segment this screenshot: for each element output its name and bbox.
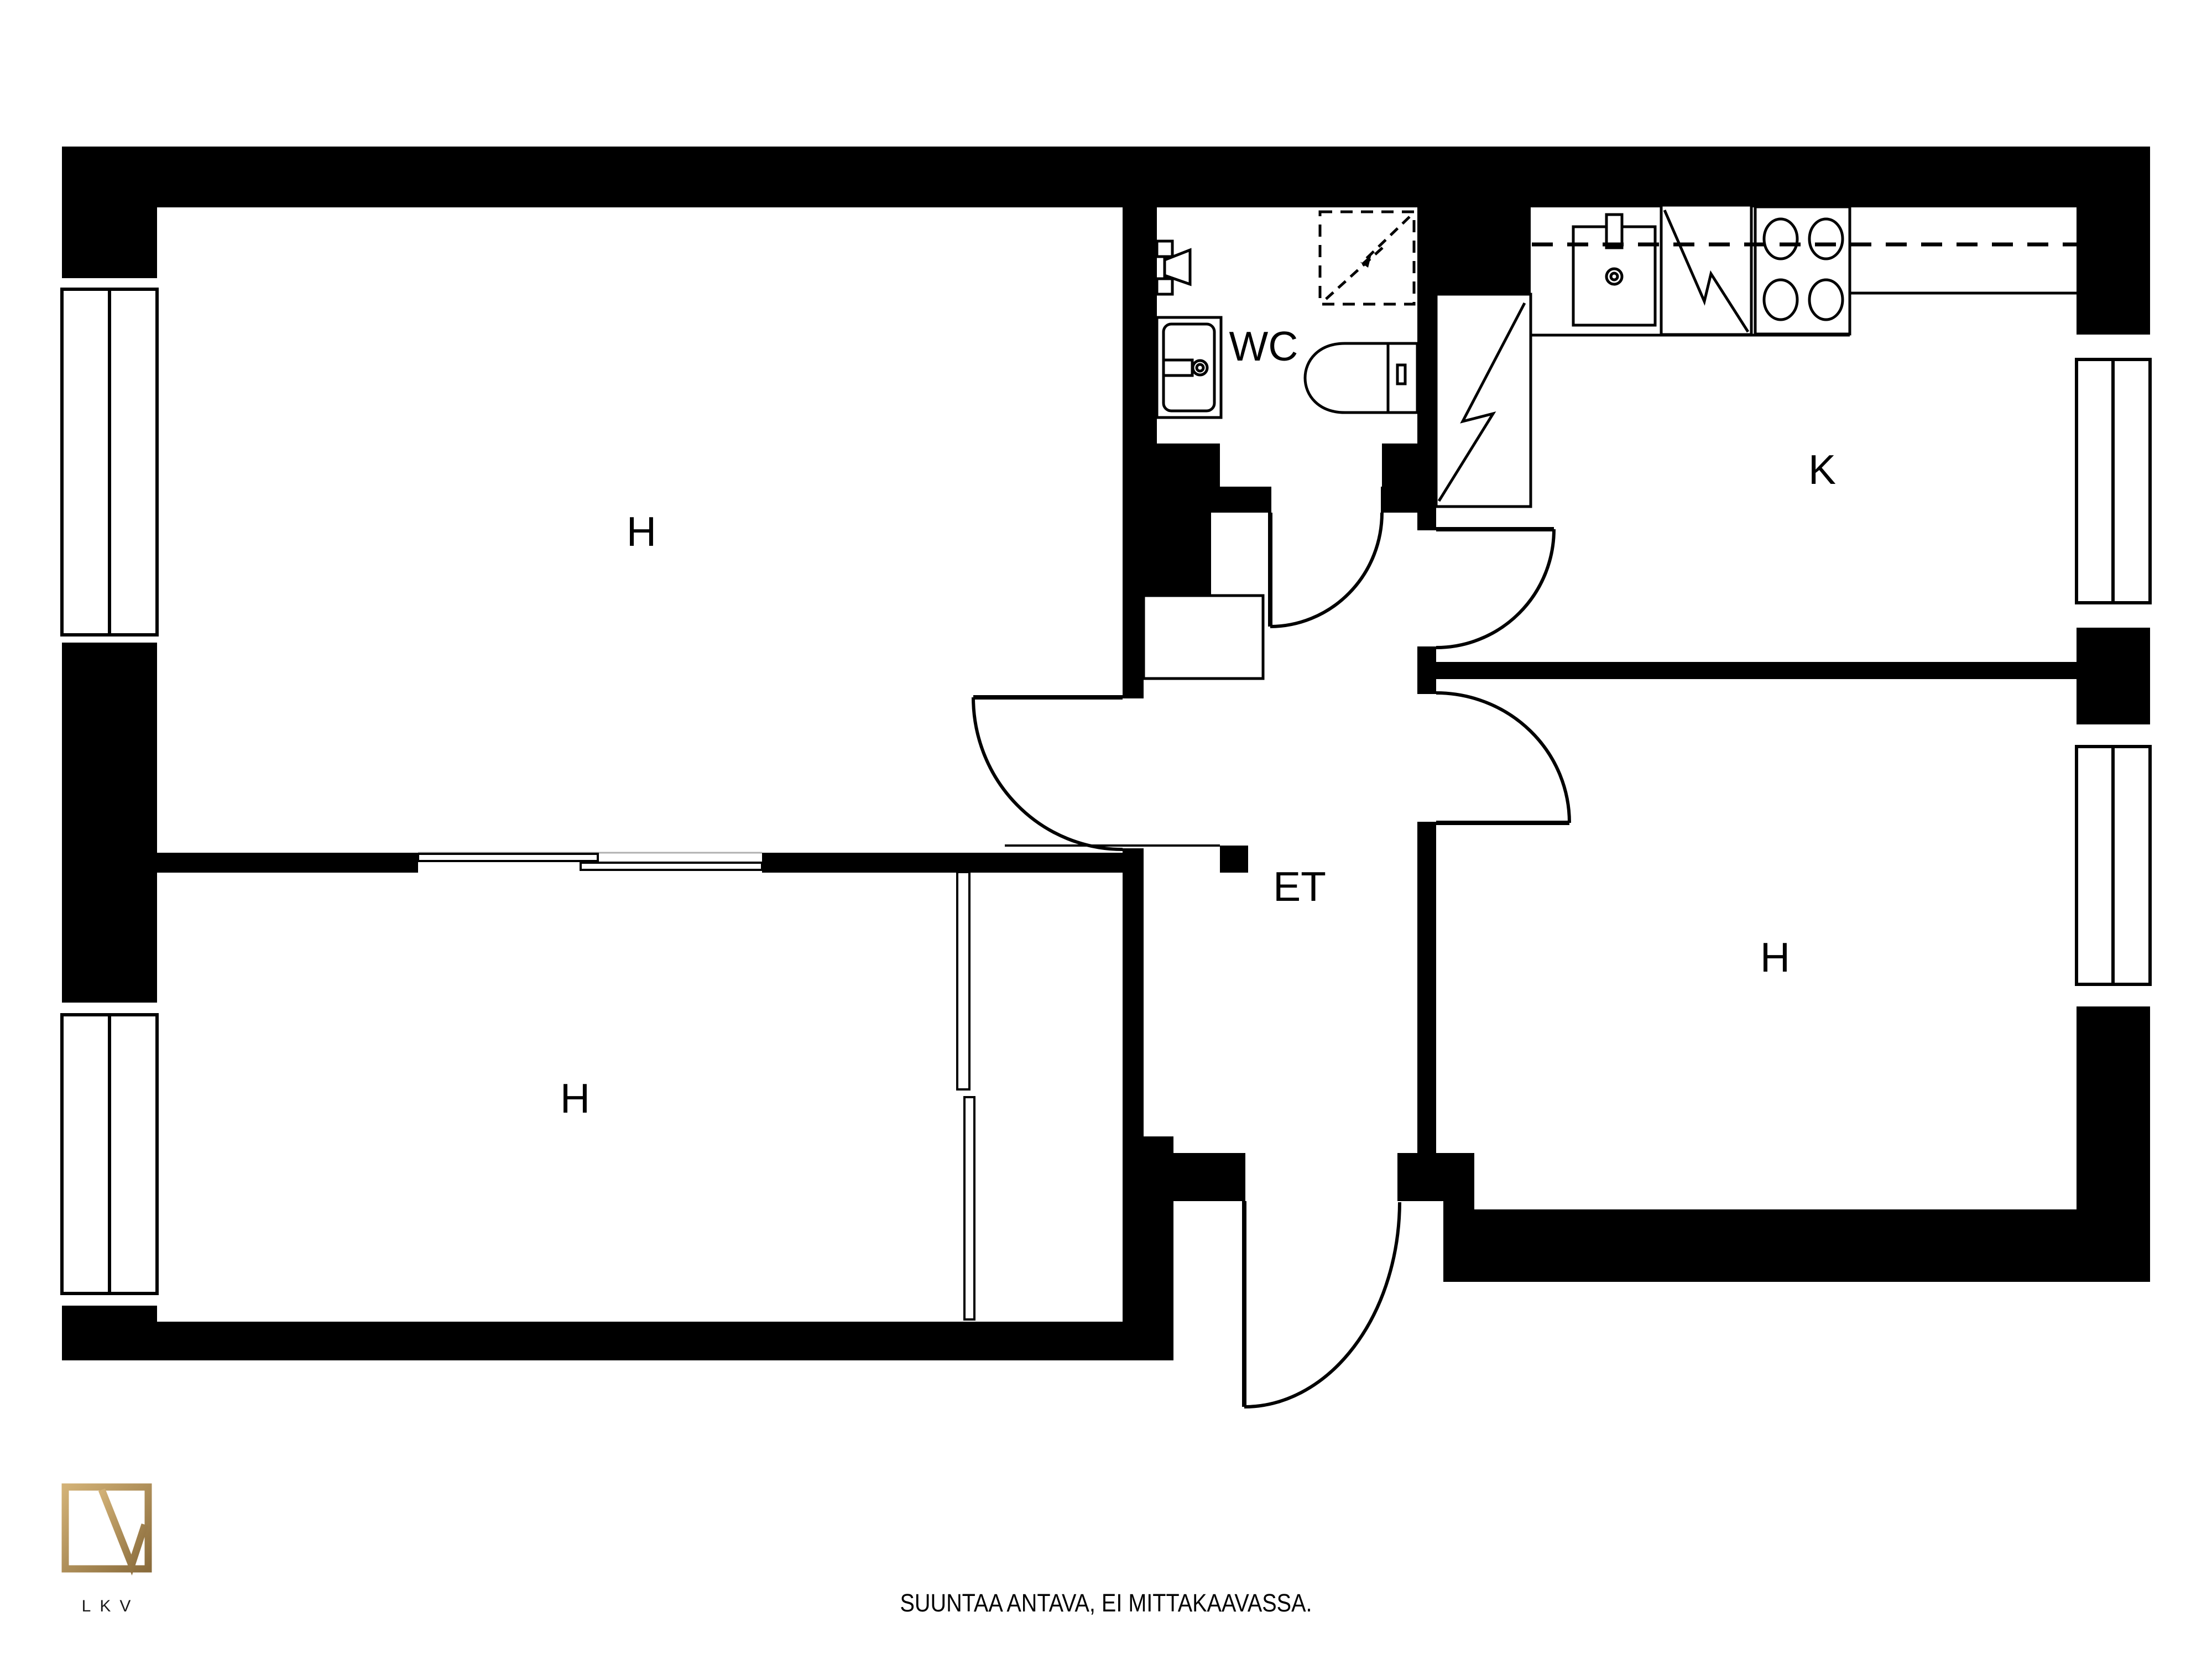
floor-plan-page: H H WC K ET H LKV SUUNTAA ANTAVA, EI MIT… bbox=[0, 0, 2212, 1659]
door-kitchen bbox=[1417, 529, 1554, 648]
sliding-panel-1 bbox=[418, 854, 598, 861]
wall-partition-band-right bbox=[762, 853, 1123, 873]
lkv-logo-text: LKV bbox=[82, 1597, 140, 1615]
wall-et-nw-block bbox=[1123, 487, 1211, 596]
label-wc: WC bbox=[1229, 323, 1298, 369]
hall-closet bbox=[1144, 596, 1263, 679]
door-h-right bbox=[1417, 693, 1569, 823]
wall-et-entrance-left bbox=[1139, 1153, 1244, 1201]
dishwasher-icon bbox=[1661, 205, 1751, 335]
window-icon-left-lower bbox=[62, 1015, 157, 1293]
door-entrance bbox=[1244, 1153, 1400, 1407]
wall-closet-post bbox=[1220, 846, 1248, 873]
lkv-logo: LKV bbox=[65, 1487, 148, 1615]
fridge-icon bbox=[1436, 294, 1531, 507]
wall-hleft-wc bbox=[1123, 207, 1157, 487]
wall-hleft-et bbox=[1123, 596, 1144, 697]
wall-partition-band-left bbox=[157, 853, 418, 873]
shower-reservation-icon bbox=[1320, 212, 1414, 304]
stove-icon bbox=[1755, 207, 1850, 334]
wall-top bbox=[62, 147, 2150, 207]
sliding-panel-2 bbox=[581, 863, 762, 870]
toilet-icon bbox=[1305, 343, 1417, 413]
wc-fixtures bbox=[1157, 212, 1417, 418]
windows bbox=[62, 289, 2150, 1293]
valve-icon bbox=[1157, 241, 1190, 294]
label-h-top-left: H bbox=[627, 508, 656, 555]
door-h-top-left bbox=[973, 697, 1144, 849]
window-icon-left-upper bbox=[62, 289, 157, 635]
wall-bleft-et bbox=[1123, 873, 1144, 1136]
wall-bottom-left bbox=[62, 1322, 1173, 1360]
wall-wc-door-jamb-right bbox=[1382, 444, 1417, 513]
wall-vestibule-right bbox=[1443, 1201, 1474, 1282]
wc-sink-icon bbox=[1157, 317, 1221, 418]
wall-hright-bottom bbox=[1474, 1209, 2150, 1282]
label-h-bottom-left: H bbox=[560, 1075, 590, 1121]
window-icon-right-h bbox=[2077, 747, 2150, 984]
wall-et-entrance-right bbox=[1399, 1153, 1474, 1201]
label-hall: ET bbox=[1273, 863, 1326, 910]
wall-et-k-upper bbox=[1417, 207, 1436, 529]
wall-left-middle bbox=[62, 643, 157, 1003]
wall-et-k-mid bbox=[1417, 648, 1436, 693]
wall-et-hright bbox=[1417, 823, 1436, 1153]
parked-panel-2 bbox=[964, 1097, 974, 1319]
footer-disclaimer: SUUNTAA ANTAVA, EI MITTAKAAVASSA. bbox=[900, 1589, 1312, 1617]
wall-k-hright bbox=[1436, 662, 2077, 679]
lkv-logo-icon bbox=[65, 1487, 148, 1569]
kitchen-sink-icon bbox=[1573, 215, 1655, 325]
wall-hleft-et-stub bbox=[1123, 849, 1144, 873]
floor-plan-svg: H H WC K ET H LKV SUUNTAA ANTAVA, EI MIT… bbox=[0, 0, 2212, 1659]
wall-above-fridge bbox=[1436, 207, 1531, 294]
door-wc bbox=[1270, 487, 1382, 627]
parked-panel-1 bbox=[957, 872, 969, 1089]
wall-right-middle bbox=[2077, 628, 2150, 724]
label-kitchen: K bbox=[1808, 446, 1836, 493]
wall-right-upper bbox=[2077, 147, 2150, 335]
wall-wc-bottom-strip bbox=[1157, 444, 1220, 487]
wall-wc-door-jamb-left bbox=[1211, 487, 1270, 513]
kitchen-fixtures bbox=[1436, 205, 2077, 507]
room-labels: H H WC K ET H bbox=[560, 323, 1836, 1121]
label-h-right: H bbox=[1760, 934, 1790, 980]
wall-left-upper bbox=[62, 147, 157, 278]
window-icon-right-kitchen bbox=[2077, 359, 2150, 603]
